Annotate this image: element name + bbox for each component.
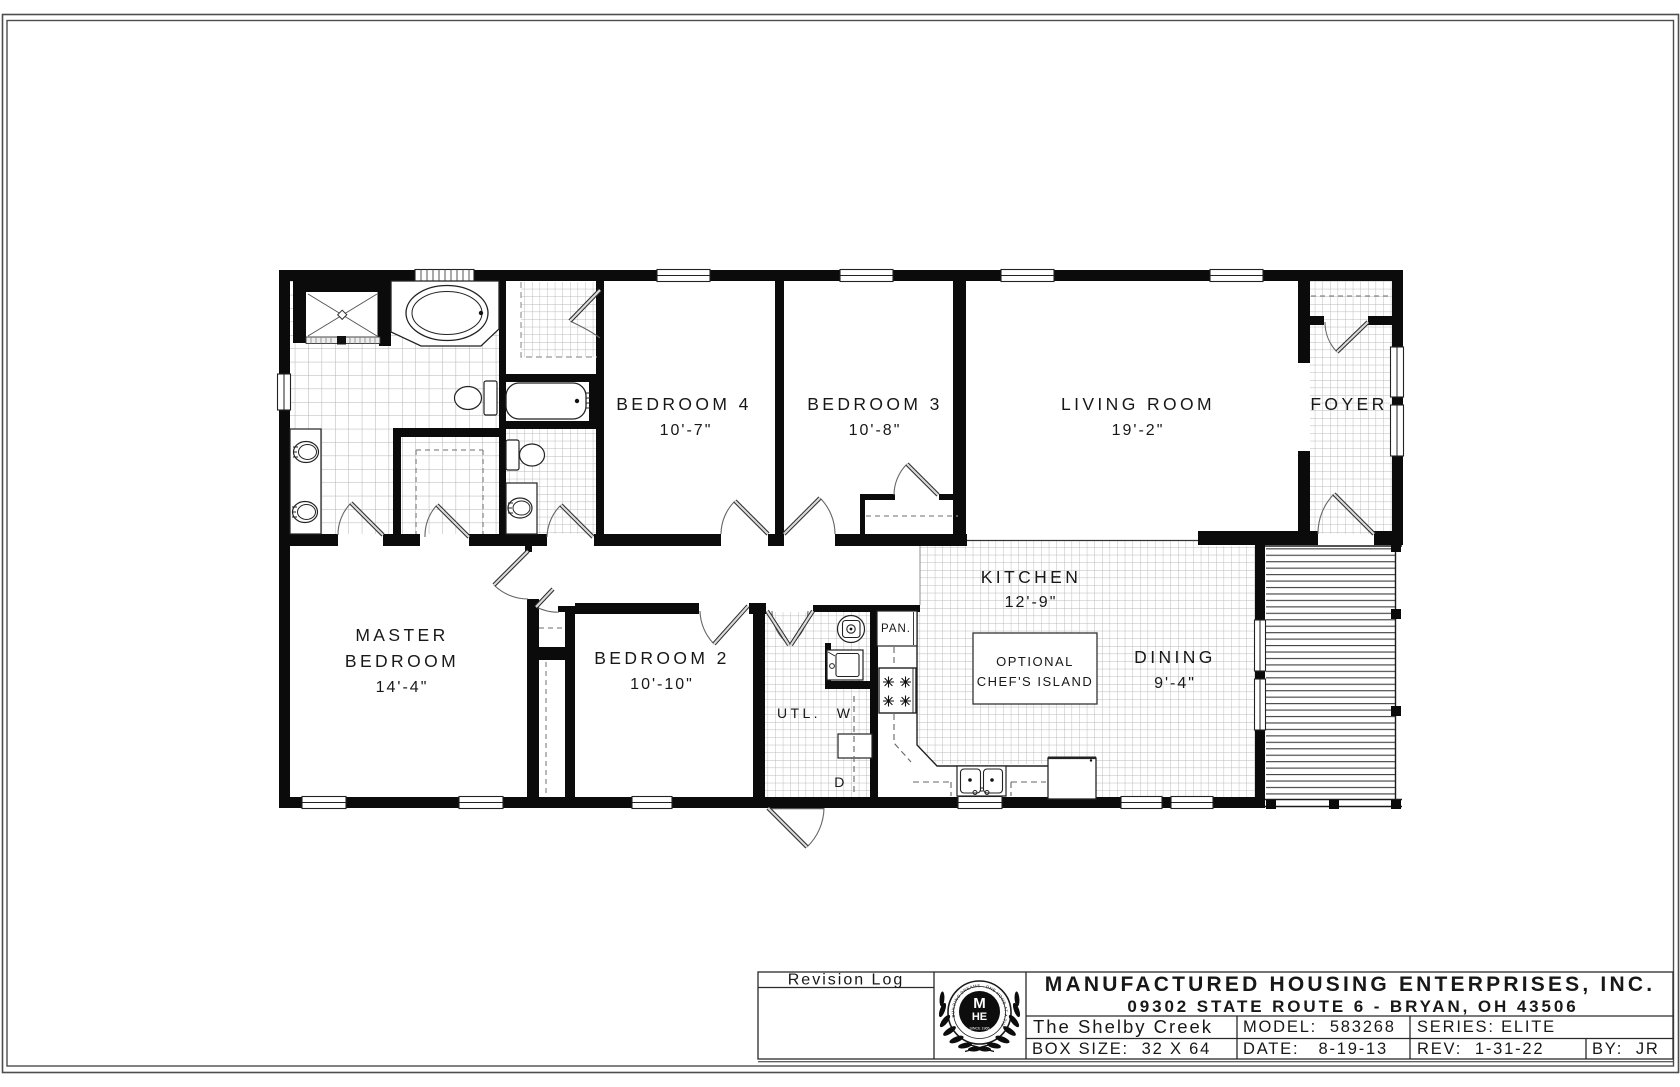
svg-text:19'-2": 19'-2" bbox=[1112, 422, 1165, 439]
svg-text:9'-4": 9'-4" bbox=[1154, 675, 1196, 692]
svg-text:MODEL: 583268: MODEL: 583268 bbox=[1243, 1018, 1396, 1036]
svg-text:12'-9": 12'-9" bbox=[1005, 594, 1058, 611]
svg-text:BEDROOM 4: BEDROOM 4 bbox=[616, 394, 752, 414]
svg-text:10'-10": 10'-10" bbox=[630, 676, 694, 693]
svg-text:BEDROOM 2: BEDROOM 2 bbox=[594, 648, 730, 668]
svg-text:W: W bbox=[837, 705, 854, 721]
svg-text:PAN.: PAN. bbox=[881, 623, 911, 635]
svg-text:D: D bbox=[834, 774, 848, 790]
svg-text:SINCE 1965: SINCE 1965 bbox=[970, 1027, 990, 1031]
svg-text:MASTER: MASTER bbox=[355, 625, 448, 645]
svg-text:HE: HE bbox=[972, 1011, 987, 1023]
svg-text:BOX SIZE: 32 X 64: BOX SIZE: 32 X 64 bbox=[1032, 1040, 1211, 1058]
svg-text:14'-4": 14'-4" bbox=[376, 679, 429, 696]
svg-text:M: M bbox=[973, 995, 986, 1012]
svg-text:CHEF'S ISLAND: CHEF'S ISLAND bbox=[977, 674, 1094, 689]
svg-text:REV: 1-31-22: REV: 1-31-22 bbox=[1417, 1040, 1544, 1058]
svg-text:SERIES: ELITE: SERIES: ELITE bbox=[1417, 1018, 1556, 1036]
svg-text:DATE: 8-19-13: DATE: 8-19-13 bbox=[1243, 1040, 1388, 1058]
svg-text:09302 STATE ROUTE 6 - BRYAN, O: 09302 STATE ROUTE 6 - BRYAN, OH 43506 bbox=[1127, 997, 1578, 1016]
svg-text:10'-8": 10'-8" bbox=[849, 422, 902, 439]
svg-text:OPTIONAL: OPTIONAL bbox=[996, 654, 1074, 669]
svg-text:BEDROOM: BEDROOM bbox=[345, 651, 459, 671]
svg-text:Revision Log: Revision Log bbox=[788, 972, 905, 989]
svg-text:LIVING ROOM: LIVING ROOM bbox=[1061, 394, 1215, 414]
svg-text:UTL.: UTL. bbox=[777, 705, 821, 721]
svg-text:BEDROOM 3: BEDROOM 3 bbox=[807, 394, 943, 414]
svg-text:FOYER: FOYER bbox=[1310, 394, 1387, 414]
svg-text:10'-7": 10'-7" bbox=[660, 422, 713, 439]
svg-text:The Shelby Creek: The Shelby Creek bbox=[1033, 1016, 1213, 1037]
svg-text:DINING: DINING bbox=[1134, 647, 1216, 667]
svg-text:KITCHEN: KITCHEN bbox=[981, 567, 1082, 587]
svg-text:BY: JR: BY: JR bbox=[1592, 1040, 1660, 1058]
svg-text:MANUFACTURED HOUSING ENTERPRIS: MANUFACTURED HOUSING ENTERPRISES, INC. bbox=[1045, 973, 1655, 996]
